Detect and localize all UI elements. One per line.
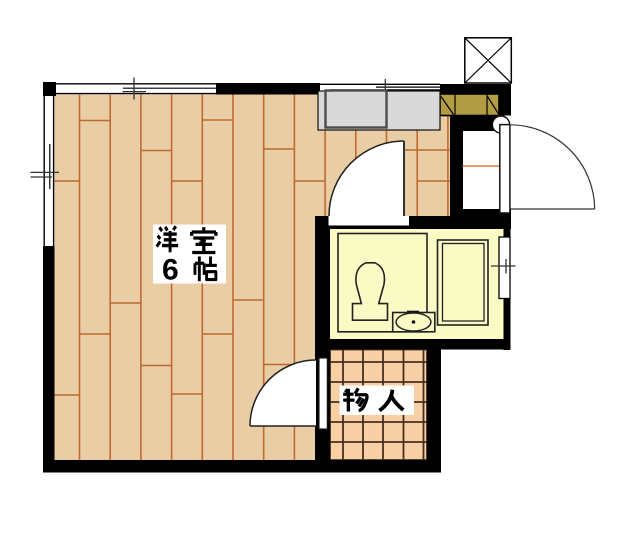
svg-text:6: 6 <box>162 254 179 287</box>
